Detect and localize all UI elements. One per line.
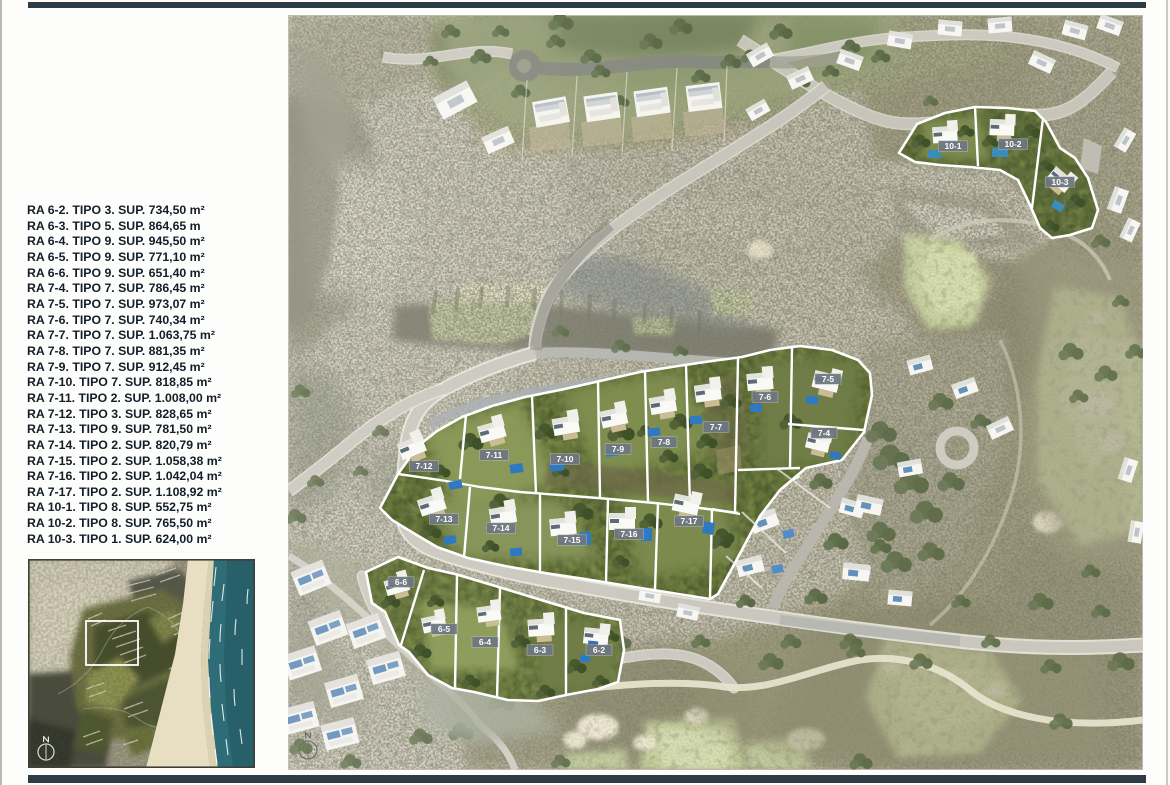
svg-text:6-3: 6-3 xyxy=(534,645,547,655)
svg-text:7-6: 7-6 xyxy=(759,392,772,402)
svg-text:7-15: 7-15 xyxy=(563,535,580,545)
svg-text:10-2: 10-2 xyxy=(1004,139,1021,149)
svg-text:10-3: 10-3 xyxy=(1051,177,1068,187)
svg-text:7-12: 7-12 xyxy=(415,461,432,471)
svg-text:6-2: 6-2 xyxy=(593,645,606,655)
svg-text:7-13: 7-13 xyxy=(435,514,452,524)
svg-text:7-8: 7-8 xyxy=(658,437,671,447)
svg-text:7-11: 7-11 xyxy=(486,450,503,460)
svg-text:7-5: 7-5 xyxy=(822,374,835,384)
svg-text:7-7: 7-7 xyxy=(710,422,723,432)
svg-text:7-4: 7-4 xyxy=(818,428,831,438)
svg-text:7-16: 7-16 xyxy=(620,529,637,539)
svg-text:7-9: 7-9 xyxy=(612,444,625,454)
svg-text:10-1: 10-1 xyxy=(944,141,961,151)
svg-text:6-6: 6-6 xyxy=(395,577,408,587)
svg-text:7-14: 7-14 xyxy=(492,523,509,533)
svg-text:7-10: 7-10 xyxy=(556,454,573,464)
svg-text:7-17: 7-17 xyxy=(680,516,697,526)
svg-text:6-5: 6-5 xyxy=(438,624,451,634)
svg-text:6-4: 6-4 xyxy=(479,637,492,647)
